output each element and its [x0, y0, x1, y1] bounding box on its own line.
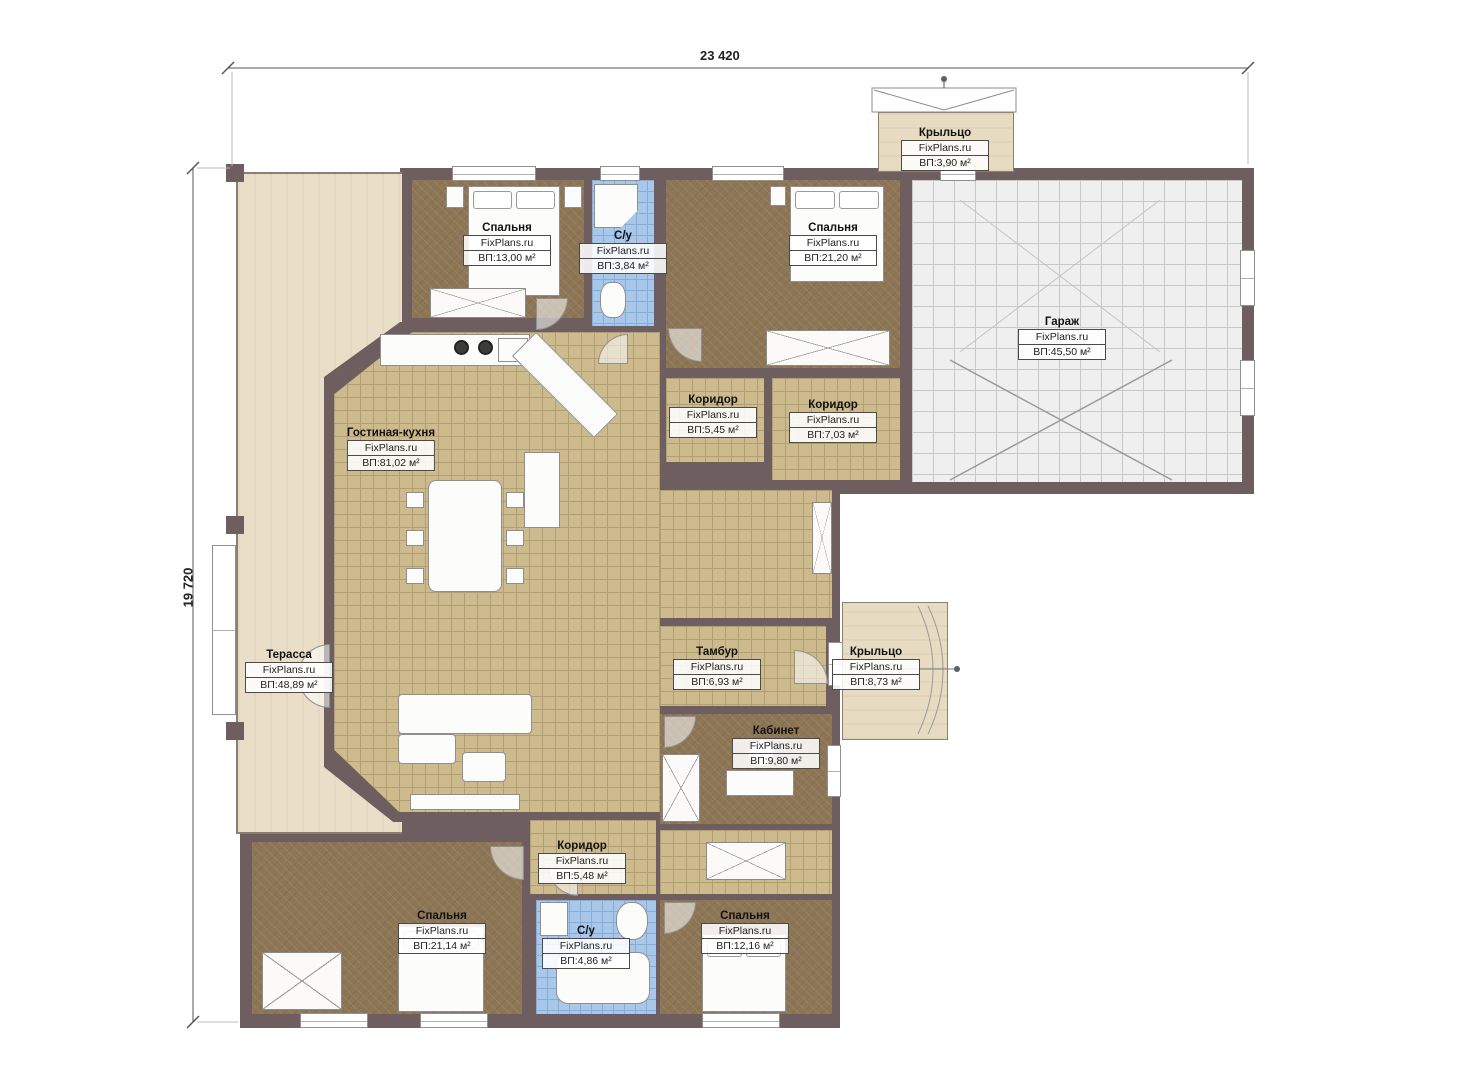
terrace-column [226, 164, 244, 182]
room-name: Коридор [789, 399, 877, 411]
terrace-window [212, 545, 236, 715]
room-label-porch-right: Крыльцо FixPlans.ru ВП:8,73 м² [832, 646, 920, 690]
room-label-study: Кабинет FixPlans.ru ВП:9,80 м² [732, 725, 820, 769]
room-brand: FixPlans.ru [732, 738, 820, 754]
nightstand [564, 186, 582, 208]
tv-stand [410, 794, 520, 810]
room-brand: FixPlans.ru [347, 440, 435, 456]
chair [406, 530, 424, 546]
floor-central-hall [660, 490, 832, 618]
room-name: Терасса [245, 649, 333, 661]
room-area: ВП:7,03 м² [789, 427, 877, 443]
room-label-garage: Гараж FixPlans.ru ВП:45,50 м² [1018, 316, 1106, 360]
room-brand: FixPlans.ru [901, 140, 989, 156]
room-label-porch-top: Крыльцо FixPlans.ru ВП:3,90 м² [901, 127, 989, 171]
room-area: ВП:6,93 м² [673, 674, 761, 690]
room-brand: FixPlans.ru [789, 412, 877, 428]
wardrobe [262, 952, 342, 1010]
room-name: Коридор [669, 394, 757, 406]
chair [406, 492, 424, 508]
nightstand [446, 186, 464, 208]
stove-burner [478, 340, 493, 355]
room-area: ВП:5,48 м² [538, 868, 626, 884]
floor-plan: 23 420 19 720 Крыльцо FixPlans.ru ВП:3,9… [0, 0, 1474, 1080]
room-area: ВП:81,02 м² [347, 455, 435, 471]
room-label-corridor-2: Коридор FixPlans.ru ВП:7,03 м² [789, 399, 877, 443]
terrace-column [226, 516, 244, 534]
dimension-top: 23 420 [700, 48, 740, 63]
room-label-bedroom-2: Спальня FixPlans.ru ВП:21,20 м² [789, 222, 877, 266]
room-brand: FixPlans.ru [701, 923, 789, 939]
chair [506, 568, 524, 584]
room-name: Тамбур [673, 646, 761, 658]
window [702, 1013, 780, 1028]
wardrobe [430, 288, 526, 318]
chair [406, 568, 424, 584]
room-brand: FixPlans.ru [463, 235, 551, 251]
chair [506, 492, 524, 508]
room-label-corridor-1: Коридор FixPlans.ru ВП:5,45 м² [669, 394, 757, 438]
room-area: ВП:48,89 м² [245, 677, 333, 693]
room-label-living-kitchen: Гостиная-кухня FixPlans.ru ВП:81,02 м² [347, 427, 435, 471]
window [452, 166, 536, 181]
chair [506, 530, 524, 546]
room-label-tambour: Тамбур FixPlans.ru ВП:6,93 м² [673, 646, 761, 690]
room-area: ВП:21,20 м² [789, 250, 877, 266]
room-brand: FixPlans.ru [245, 662, 333, 678]
window [600, 166, 640, 181]
room-name: Спальня [701, 910, 789, 922]
room-name: Спальня [398, 910, 486, 922]
wardrobe [812, 502, 832, 574]
room-area: ВП:12,16 м² [701, 938, 789, 954]
room-area: ВП:45,50 м² [1018, 344, 1106, 360]
room-area: ВП:3,84 м² [579, 258, 667, 274]
room-area: ВП:8,73 м² [832, 674, 920, 690]
room-label-corridor-3: Коридор FixPlans.ru ВП:5,48 м² [538, 840, 626, 884]
sofa [398, 694, 532, 734]
room-area: ВП:9,80 м² [732, 753, 820, 769]
room-brand: FixPlans.ru [832, 659, 920, 675]
room-label-bedroom-3: Спальня FixPlans.ru ВП:21,14 м² [398, 910, 486, 954]
room-name: Спальня [789, 222, 877, 234]
room-brand: FixPlans.ru [538, 853, 626, 869]
toilet [600, 282, 626, 318]
coffee-table [462, 752, 506, 782]
window [300, 1013, 368, 1028]
storage-closet [662, 754, 700, 822]
room-brand: FixPlans.ru [789, 235, 877, 251]
room-label-terrace: Терасса FixPlans.ru ВП:48,89 м² [245, 649, 333, 693]
window [712, 166, 784, 181]
room-name: С/у [579, 230, 667, 242]
room-brand: FixPlans.ru [398, 923, 486, 939]
nightstand [770, 186, 786, 206]
room-name: Гостиная-кухня [347, 427, 435, 439]
room-label-bathroom-2: С/у FixPlans.ru ВП:4,86 м² [542, 925, 630, 969]
room-name: Крыльцо [901, 127, 989, 139]
stove-burner [454, 340, 469, 355]
garage-gate [1240, 250, 1255, 306]
desk [726, 770, 794, 796]
room-label-bedroom-1: Спальня FixPlans.ru ВП:13,00 м² [463, 222, 551, 266]
room-brand: FixPlans.ru [1018, 329, 1106, 345]
room-name: Коридор [538, 840, 626, 852]
room-brand: FixPlans.ru [673, 659, 761, 675]
dimension-left: 19 720 [180, 568, 195, 608]
room-brand: FixPlans.ru [579, 243, 667, 259]
room-area: ВП:3,90 м² [901, 155, 989, 171]
room-name: Спальня [463, 222, 551, 234]
room-area: ВП:13,00 м² [463, 250, 551, 266]
dining-table [428, 480, 502, 592]
terrace-column [226, 722, 244, 740]
room-name: Кабинет [732, 725, 820, 737]
room-brand: FixPlans.ru [669, 407, 757, 423]
room-label-bedroom-4: Спальня FixPlans.ru ВП:12,16 м² [701, 910, 789, 954]
window [420, 1013, 488, 1028]
garage-gate [1240, 360, 1255, 416]
room-area: ВП:21,14 м² [398, 938, 486, 954]
wardrobe [706, 842, 786, 880]
window [827, 745, 841, 797]
kitchen-counter-side [524, 452, 560, 528]
wardrobe [766, 330, 890, 366]
room-name: Крыльцо [832, 646, 920, 658]
room-area: ВП:4,86 м² [542, 953, 630, 969]
room-brand: FixPlans.ru [542, 938, 630, 954]
room-label-bathroom-1: С/у FixPlans.ru ВП:3,84 м² [579, 230, 667, 274]
room-name: С/у [542, 925, 630, 937]
room-name: Гараж [1018, 316, 1106, 328]
room-area: ВП:5,45 м² [669, 422, 757, 438]
sofa-section [398, 734, 456, 764]
